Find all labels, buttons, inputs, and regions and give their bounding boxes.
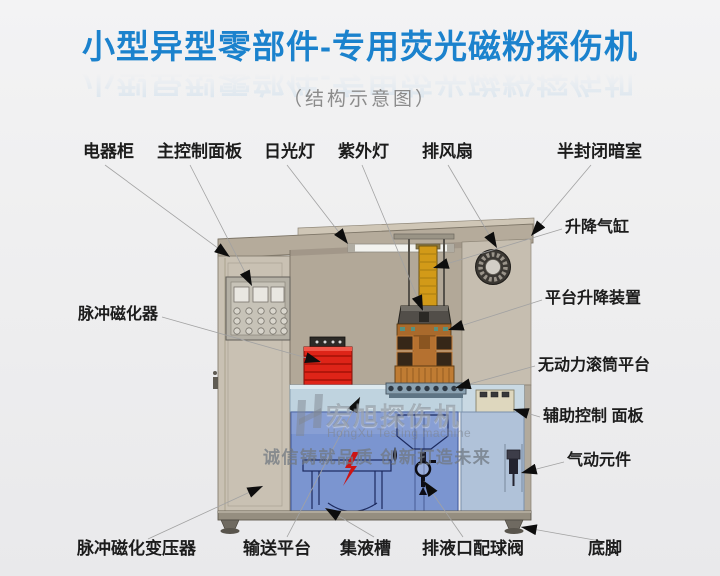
- pulse-magnetizer: [304, 337, 352, 385]
- callout-electric-cabinet: 电器柜: [83, 142, 134, 162]
- callout-drain-ball-valve: 排液口配球阀: [422, 539, 524, 559]
- callout-pulse-magnetizing-transformer: 脉冲磁化变压器: [77, 539, 196, 559]
- callout-semi-enclosed-darkroom: 半封闭暗室: [557, 142, 642, 162]
- callout-main-control-panel: 主控制面板: [157, 142, 242, 162]
- callout-auxiliary-control-panel: 辅助控制 面板: [543, 408, 643, 426]
- leader-electric-cabinet: [105, 165, 230, 257]
- callout-pneumatic-components: 气动元件: [567, 452, 631, 470]
- callout-liquid-collecting-tank: 集液槽: [340, 539, 391, 559]
- main-control-panel: [226, 277, 290, 340]
- machine-diagram: [0, 0, 720, 576]
- auxiliary-control-panel: [476, 390, 514, 412]
- exhaust-fan: [476, 250, 511, 285]
- callout-conveying-platform: 输送平台: [243, 539, 311, 559]
- callout-lifting-cylinder: 升降气缸: [565, 219, 629, 237]
- callout-uv-lamp: 紫外灯: [338, 142, 389, 162]
- callout-pulse-magnetizer: 脉冲磁化器: [78, 306, 158, 324]
- callout-exhaust-fan: 排风扇: [422, 142, 473, 162]
- callout-unpowered-roller-platform: 无动力滚筒平台: [538, 357, 650, 375]
- callout-fluorescent-lamp: 日光灯: [264, 142, 315, 162]
- structure-diagram-page: 小型异型零部件-专用荧光磁粉探伤机 小型异型零部件-专用荧光磁粉探伤机 （结构示…: [0, 0, 720, 576]
- callout-platform-lifting-device: 平台升降装置: [545, 290, 641, 308]
- callout-machine-foot: 底脚: [588, 539, 622, 559]
- machine-feet: [221, 520, 524, 534]
- uv-lamp-housing: [398, 306, 451, 324]
- roller-platform: [386, 383, 466, 398]
- machine-base: [218, 511, 531, 520]
- platform-lifting-device: [395, 324, 454, 389]
